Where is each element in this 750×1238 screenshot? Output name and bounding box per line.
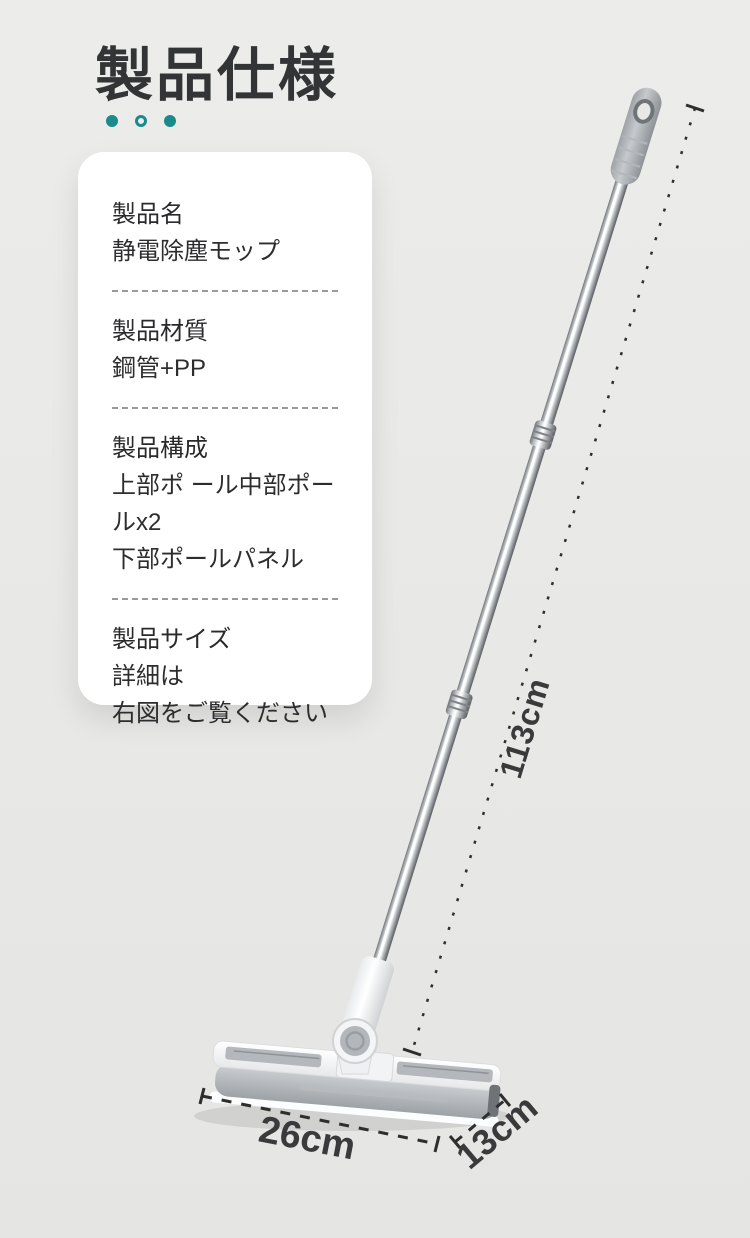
spec-label: 製品構成	[112, 430, 338, 467]
spec-section-size: 製品サイズ 詳細は 右図をご覧ください	[112, 621, 338, 732]
spec-value-line: 上部ポ ール中部ポールx2	[112, 467, 338, 541]
spec-label: 製品名	[112, 196, 338, 233]
dashed-divider	[112, 407, 338, 409]
spec-value-line: 下部ポールパネル	[112, 541, 338, 578]
spec-value-line: 静電除塵モップ	[112, 233, 338, 270]
spec-label: 製品サイズ	[112, 621, 338, 658]
dimension-line-113cm	[403, 105, 704, 1055]
spec-label: 製品材質	[112, 313, 338, 350]
dashed-divider	[112, 290, 338, 292]
mop-pole	[339, 83, 667, 1042]
swivel-joint	[333, 1019, 377, 1063]
spec-value-line: 右図をご覧ください	[112, 695, 338, 732]
spec-value-line: 鋼管+PP	[112, 350, 338, 387]
mop-handle-grip	[607, 84, 665, 188]
spec-section-material: 製品材質 鋼管+PP	[112, 313, 338, 387]
spec-card: 製品名 静電除塵モップ 製品材質 鋼管+PP 製品構成 上部ポ ール中部ポールx…	[78, 152, 372, 705]
spec-value-line: 詳細は	[112, 658, 338, 695]
spec-section-product-name: 製品名 静電除塵モップ	[112, 196, 338, 270]
spec-section-composition: 製品構成 上部ポ ール中部ポールx2 下部ポールパネル	[112, 430, 338, 578]
product-spec-page: 製品仕様	[0, 0, 750, 1238]
dashed-divider	[112, 598, 338, 600]
